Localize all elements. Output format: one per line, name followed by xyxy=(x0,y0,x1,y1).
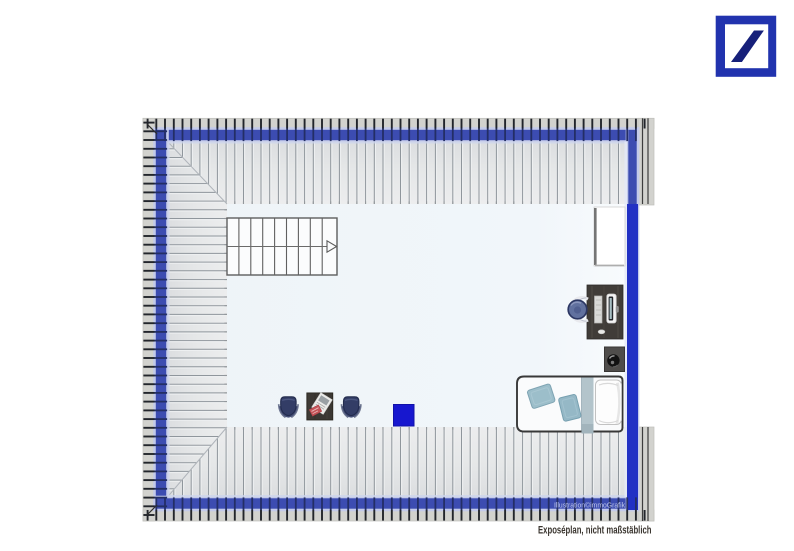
svg-text:Illustration©immoGrafik: Illustration©immoGrafik xyxy=(554,501,626,509)
svg-text:Exposéplan, nicht maßstäblich: Exposéplan, nicht maßstäblich xyxy=(538,525,652,537)
